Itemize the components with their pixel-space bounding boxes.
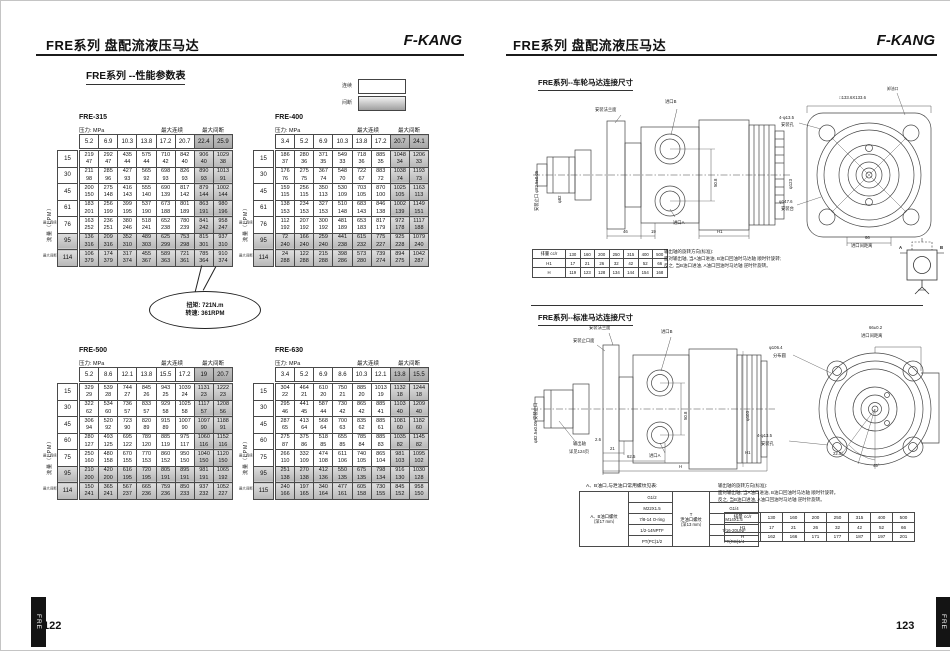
drawing-shape: 176	[276, 168, 294, 176]
brand-logo: F-KANG	[404, 32, 462, 49]
table-cell: 805191	[156, 466, 175, 483]
table-cell: 317374	[118, 250, 137, 267]
drawing-shape: 37	[276, 159, 294, 166]
table-cell: 916130	[390, 466, 409, 483]
drawing-shape	[797, 197, 821, 205]
table-cell: 15	[254, 384, 274, 401]
table-cell: 256199	[99, 200, 118, 217]
table-row: 3069452092723908208991589100790109790118…	[80, 417, 233, 434]
drawing-shape: 1206	[410, 152, 428, 160]
table-cell: 25.9	[213, 135, 232, 149]
mounting-holes-text-label: 安装孔	[761, 441, 774, 447]
drawing-shape: 94	[80, 425, 98, 432]
drawing-shape: 20	[353, 392, 371, 399]
table-cell: 937310	[213, 233, 232, 250]
drawing-shape: 775	[372, 234, 390, 242]
table-cell: 981191	[194, 466, 213, 483]
drawing-shape: 191	[176, 475, 194, 482]
drawing-shape: 288	[276, 258, 294, 265]
drawing-shape: 398	[333, 251, 351, 259]
drawing-shape: 616	[118, 467, 136, 475]
drawing-shape: 1131	[195, 385, 213, 393]
table-cell: 683143	[352, 200, 371, 217]
drawing-shape: 379	[99, 258, 117, 265]
table-cell: 54870	[333, 167, 352, 184]
table-cell: 136316	[80, 233, 99, 250]
drawing-shape: 241	[99, 491, 117, 498]
drawing-shape	[915, 287, 922, 294]
drawing-shape: 44	[137, 159, 155, 166]
drawing-shape: 209	[99, 234, 117, 242]
table-cell: 106379	[80, 250, 99, 267]
drawing-shape: 611	[333, 451, 351, 459]
pressure-header-row: 3.45.26.98.610.312.113.815.5	[275, 367, 429, 382]
table-row: 75	[58, 450, 78, 467]
table-cell: H	[725, 532, 761, 542]
drawing-shape: 710	[157, 152, 175, 160]
thread-option: 7/8-14 O-ring	[629, 514, 676, 525]
table-cell: 54933	[333, 151, 352, 168]
drawing-shape: 850	[176, 484, 194, 492]
drawing-shape: 74	[314, 176, 332, 183]
table-cell: 95	[58, 233, 78, 250]
table-row: H119123128134144154168	[533, 268, 668, 277]
table-cell: 111757	[194, 400, 213, 417]
table-cell: 860152	[156, 450, 175, 467]
drawing-shape: 303	[137, 242, 155, 249]
drawing-shape: 56	[214, 409, 232, 416]
drawing-shape: 285	[99, 168, 117, 176]
table-row: 30	[254, 400, 274, 417]
table-cell: 119373	[409, 167, 428, 184]
drawing-shape: 785	[353, 434, 371, 442]
table-row: 1381532341533271535101486831438461381002…	[276, 200, 429, 217]
drawing-shape: 113	[410, 192, 428, 199]
drawing-shape: 801	[176, 201, 194, 209]
table-row: 排量 cc/r130160200250315400500	[533, 250, 668, 259]
max-intermittent-marker: 最大间断	[43, 254, 57, 259]
drawing-shape: 24	[176, 392, 194, 399]
table-cell: 340164	[314, 483, 333, 500]
drawing-shape: 67	[353, 176, 371, 183]
drawing-shape: 153	[314, 209, 332, 216]
drawing-shape: 683	[353, 201, 371, 209]
table-cell: 250160	[80, 450, 99, 467]
drawing-shape: 192	[314, 225, 332, 232]
drawing-shape	[914, 257, 931, 274]
table-cell: 259240	[314, 233, 333, 250]
drawing-shape: 288	[314, 258, 332, 265]
drawing-shape: 833	[137, 401, 155, 409]
table-cell: 88583	[371, 433, 390, 450]
table-cell: 24.1	[409, 135, 428, 149]
table-cell: 474108	[314, 450, 333, 467]
drawing-shape: 655	[333, 434, 351, 442]
drawing-shape: 275	[276, 434, 294, 442]
drawing-shape	[907, 250, 937, 280]
drawing-shape: 21	[333, 392, 351, 399]
drawing-shape: 1117	[410, 218, 428, 226]
table-cell: 400	[638, 250, 653, 259]
drawing-shape: 549	[333, 152, 351, 160]
flange-face-label: 安装法兰面	[595, 107, 616, 113]
table-title: FRE-500	[79, 347, 107, 354]
table-cell: 37135	[314, 151, 333, 168]
drawing-shape: 236	[99, 218, 117, 226]
table-row: 1502413652415672376652367592368502339372…	[80, 483, 233, 500]
table-cell: 26	[595, 259, 610, 268]
table-cell: 251138	[276, 466, 295, 483]
table-cell: 315	[849, 513, 871, 523]
performance-table-fre-400: FRE-400压力: MPa最大连续最大间断流量（LPM）最大连续最大间断3.4…	[239, 114, 431, 270]
table-row: 61	[254, 200, 274, 217]
table-cell: 365241	[99, 483, 118, 500]
drawing-shape: 740	[353, 451, 371, 459]
table-cell: 673188	[156, 200, 175, 217]
table-cell: 28596	[99, 167, 118, 184]
table-row: 1121922071923001924811896531838171799721…	[276, 217, 429, 234]
max-continuous-marker: 最大连续	[239, 221, 253, 226]
table-cell: 83357	[137, 400, 156, 417]
table-cell: 894275	[390, 250, 409, 267]
table-cell: 8.6	[99, 368, 118, 382]
table-cell: 380246	[118, 217, 137, 234]
drawing-shape: 958	[214, 218, 232, 226]
drawing-shape: 413	[295, 418, 313, 426]
header-rule	[506, 54, 937, 56]
drawing-shape: 1065	[214, 467, 232, 475]
drawing-shape: 301	[195, 242, 213, 249]
drawing-shape: 192	[214, 475, 232, 482]
table-cell: 3.4	[276, 368, 295, 382]
drawing-shape: 197	[295, 484, 313, 492]
table-cell: 1065192	[213, 466, 232, 483]
drawing-shape: 845	[391, 484, 409, 492]
table-cell: 114582	[409, 433, 428, 450]
drawing-shape: 435	[118, 152, 136, 160]
table-cell: 20.7	[175, 135, 194, 149]
table-cell: 61	[254, 200, 274, 217]
drawing-shape: 1030	[410, 467, 428, 475]
drawing-shape: 85	[314, 442, 332, 449]
table-cell: 95	[58, 466, 78, 483]
drawing-shape: 38	[214, 159, 232, 166]
table-cell: 72240	[276, 233, 295, 250]
table-cell: 15.5	[409, 368, 428, 382]
drawing-shape: 150	[80, 192, 98, 199]
angle-22-5-label: 22.5°	[833, 451, 843, 456]
dim-h1-label: H1	[745, 450, 751, 455]
table-cell: 73042	[333, 400, 352, 417]
drawing-shape: 251	[276, 467, 294, 475]
drawing-shape: 115	[276, 192, 294, 199]
drawing-shape: 280	[353, 258, 371, 265]
table-cell: 234153	[295, 200, 314, 217]
drawing-shape: 266	[276, 451, 294, 459]
table-cell: 17.2	[371, 135, 390, 149]
drawing-shape: 18	[410, 392, 428, 399]
table-cell: 721361	[175, 250, 194, 267]
mounting-holes-dim-label: 4-φ13.5	[757, 433, 772, 438]
table-cell: 95	[254, 233, 274, 250]
drawing-shape: 238	[333, 242, 351, 249]
drawing-shape: 981	[391, 451, 409, 459]
drawing-shape: 239	[176, 225, 194, 232]
drawing-shape: 673	[157, 201, 175, 209]
drawing-shape: 295	[276, 401, 294, 409]
drawing-shape: 1038	[391, 168, 409, 176]
drawing-shape: 288	[295, 258, 313, 265]
table-cell: 103924	[175, 384, 194, 401]
drawing-shape: 1149	[410, 201, 428, 209]
table-cell: 350113	[314, 184, 333, 201]
drawing-shape: 240	[314, 242, 332, 249]
symbol-port-a-label: A	[899, 245, 902, 250]
table-cell: 30694	[80, 417, 99, 434]
mounting-holes-text-label: 安装孔	[781, 122, 794, 128]
drawing-shape: 179	[372, 225, 390, 232]
drawing-shape: 192	[295, 225, 313, 232]
drawing-shape: 207	[295, 218, 313, 226]
thread-ab-label-cell: A、B油口螺纹 （深17 mm）	[580, 492, 629, 547]
table-title: FRE-630	[275, 347, 303, 354]
drawing-shape: 1081	[391, 418, 409, 426]
drawing-shape	[921, 373, 939, 443]
table-cell: 981103	[390, 450, 409, 467]
table-cell: 980196	[213, 200, 232, 217]
legend-continuous-swatch	[358, 79, 406, 94]
table-row: 2661103321094741086111067401058651049811…	[276, 450, 429, 467]
drawing-shape: 1208	[214, 401, 232, 409]
table-cell: 29546	[276, 400, 295, 417]
drawing-shape: 82	[391, 442, 409, 449]
drawing-shape: 317	[118, 251, 136, 259]
table-cell: 112192	[276, 217, 295, 234]
drawing-shape: 730	[372, 484, 390, 492]
drawing-shape: 1042	[410, 251, 428, 259]
drawing-shape: 589	[157, 251, 175, 259]
drawing-shape: 96	[99, 176, 117, 183]
table-cell: 740105	[352, 450, 371, 467]
drawing-shape: 72	[276, 234, 294, 242]
flow-column: 153045607595114	[57, 383, 78, 500]
table-cell: 209316	[99, 233, 118, 250]
drawing-shape: 72	[372, 176, 390, 183]
table-cell: 37586	[295, 433, 314, 450]
table-cell: 477161	[333, 483, 352, 500]
drawing-shape: 722	[353, 168, 371, 176]
table-cell: 74427	[118, 384, 137, 401]
drawing-shape: 153045617695114	[254, 151, 274, 267]
table-cell: 6.9	[314, 368, 333, 382]
drawing-shape: 329	[80, 385, 98, 393]
table-cell: 166240	[295, 233, 314, 250]
drawing-shape: 45	[295, 409, 313, 416]
table-cell: 13.8	[390, 368, 409, 382]
drawing-shape: 150	[410, 491, 428, 498]
table-cell: 86542	[352, 400, 371, 417]
drawing-shape: 464	[295, 385, 313, 393]
table-cell: 71836	[352, 151, 371, 168]
table-cell: 171	[805, 532, 827, 542]
drawing-shape: 1097	[195, 418, 213, 426]
table-cell: 21	[783, 522, 805, 532]
table-cell: 399195	[118, 200, 137, 217]
thread-t-label-3: （深13 mm）	[674, 522, 708, 527]
table-cell: 5.2	[80, 368, 99, 382]
drawing-shape: 493	[99, 434, 117, 442]
table-cell: 12.1	[118, 368, 137, 382]
drawing-shape: 42	[353, 409, 371, 416]
table-cell: 42793	[118, 167, 137, 184]
drawing-shape	[531, 333, 939, 475]
drawing-shape: 247	[214, 225, 232, 232]
table-cell: 159115	[276, 184, 295, 201]
drawing-shape: 116	[195, 442, 213, 449]
drawing-shape: 60	[410, 425, 428, 432]
max-intermittent-label: 最大间断	[193, 359, 233, 367]
table-row: 2954644145587447304286542885411103401209…	[276, 400, 429, 417]
table-cell: 13.8	[137, 135, 156, 149]
table-row: 2401661971653401644771616051587301558451…	[276, 483, 429, 500]
table-row: 2194729247435445754471042842409064010293…	[80, 151, 233, 168]
drawing-shape: 90	[118, 425, 136, 432]
drawing-shape: 890	[195, 168, 213, 176]
drawing-shape: 530	[333, 185, 351, 193]
drawing-shape	[827, 361, 847, 381]
table-row: 76	[254, 217, 274, 234]
table-cell: 150241	[80, 483, 99, 500]
drawing-shape: 211	[80, 168, 98, 176]
table-cell: 71042	[156, 151, 175, 168]
table-cell: 759236	[156, 483, 175, 500]
rotation-note-standard: 输出轴的旋转方向(标准): 面对输出轴, 当A油口进油, B油口回油时马达轴 顺…	[718, 482, 838, 503]
flow-column: 153045607595115	[253, 383, 274, 500]
drawing-shape: 76	[276, 176, 294, 183]
wheel-motor-drawing-svg	[531, 87, 945, 249]
table-cell: 8.6	[333, 368, 352, 382]
drawing-shape: 780	[176, 218, 194, 226]
table-row: 15	[254, 384, 274, 401]
drawing-shape: 62	[80, 409, 98, 416]
table-cell: 3.4	[276, 135, 295, 149]
standard-motor-drawing-svg	[531, 325, 945, 479]
drawing-shape: 316	[99, 242, 117, 249]
table-cell: 134	[609, 268, 624, 277]
drawing-shape: 750	[333, 385, 351, 393]
drawing-shape: 190	[137, 209, 155, 216]
drawing-shape: 183	[80, 201, 98, 209]
table-cell: 88561	[371, 417, 390, 434]
note-line: 输出轴的旋转方向(标准):	[718, 482, 838, 489]
table-cell: 114	[58, 483, 78, 500]
table-row: 60	[254, 433, 274, 450]
drawing-shape: 1025	[176, 401, 194, 409]
drawing-shape: 93	[157, 176, 175, 183]
table-cell: 210200	[80, 466, 99, 483]
table-cell: 20.7	[390, 135, 409, 149]
page-right: FRE系列 盘配流液压马达 F-KANG FRE系列--车轮马达连接尺寸	[476, 1, 950, 650]
drawing-shape: 138	[295, 475, 313, 482]
drawing-shape: 299	[157, 242, 175, 249]
table-cell: 730155	[371, 483, 390, 500]
table-cell: 958150	[409, 483, 428, 500]
drawing-shape: 189	[333, 225, 351, 232]
table-cell: 20.7	[213, 368, 232, 382]
drawing-shape: 1103	[391, 401, 409, 409]
callout-torque: 扭矩: 721N.m	[186, 302, 223, 311]
drawing-shape: 916	[391, 467, 409, 475]
drawing-shape: 27	[118, 392, 136, 399]
table-cell: 28765	[276, 417, 295, 434]
drawing-shape: 270	[295, 467, 313, 475]
drawing-shape: 879	[195, 185, 213, 193]
drawing-shape: 65	[276, 425, 294, 432]
table-cell: 10.3	[118, 135, 137, 149]
table-row: 45	[58, 417, 78, 434]
table-cell: 100790	[175, 417, 194, 434]
drawing-shape: 739	[372, 251, 390, 259]
drawing-shape: 158	[99, 458, 117, 465]
drawing-shape: 1095	[410, 451, 428, 459]
table-title: FRE-400	[275, 114, 303, 121]
drawing-shape: 698	[157, 168, 175, 176]
table-cell: 30	[254, 167, 274, 184]
table-cell: 177	[827, 532, 849, 542]
drawing-shape	[903, 209, 919, 225]
table-cell: 300192	[314, 217, 333, 234]
table-row: A、B油口螺纹 （深17 mm） G1/2	[580, 492, 676, 503]
table-cell: 400	[871, 513, 893, 523]
table-cell: 817179	[371, 217, 390, 234]
table-cell: 56592	[137, 167, 156, 184]
table-row: 60	[58, 433, 78, 450]
table-cell: 5.2	[80, 135, 99, 149]
drawing-shape: 1029	[214, 152, 232, 160]
drawing-shape	[858, 409, 875, 464]
port-spacing-text-label: 进口间距离	[851, 243, 872, 249]
table-cell: 160	[580, 250, 595, 259]
drawing-shape: 62	[353, 425, 371, 432]
table-cell: 10.3	[333, 135, 352, 149]
table-cell: H1	[533, 259, 566, 268]
table-cell: 162	[761, 532, 783, 542]
drawing-shape	[671, 109, 677, 135]
drawing-shape: 885	[372, 152, 390, 160]
output-shaft-ref-label: 详见124页	[569, 449, 589, 455]
drawing-shape: 151	[410, 209, 428, 216]
table-cell: 61	[58, 200, 78, 217]
table-cell: 65585	[333, 433, 352, 450]
table-cell: 215288	[314, 250, 333, 267]
table-cell: 102938	[213, 151, 232, 168]
output-shaft-label: 输出轴	[573, 441, 586, 447]
drawing-shape: 665	[137, 484, 155, 492]
drawing-shape: 575	[137, 152, 155, 160]
table-cell: 441238	[333, 233, 352, 250]
drawing-shape: 885	[372, 434, 390, 442]
table-cell: 66	[893, 522, 915, 532]
table-cell: 841242	[194, 217, 213, 234]
table-cell: 30	[254, 400, 274, 417]
table-cell: 113123	[194, 384, 213, 401]
dim-19-label: 19	[651, 229, 656, 234]
drawing-shape: 36	[353, 159, 371, 166]
drawing-shape	[903, 437, 923, 457]
drawing-shape: 105	[353, 458, 371, 465]
drawing-shape: 86	[295, 442, 313, 449]
drawing-shape: 160	[80, 458, 98, 465]
